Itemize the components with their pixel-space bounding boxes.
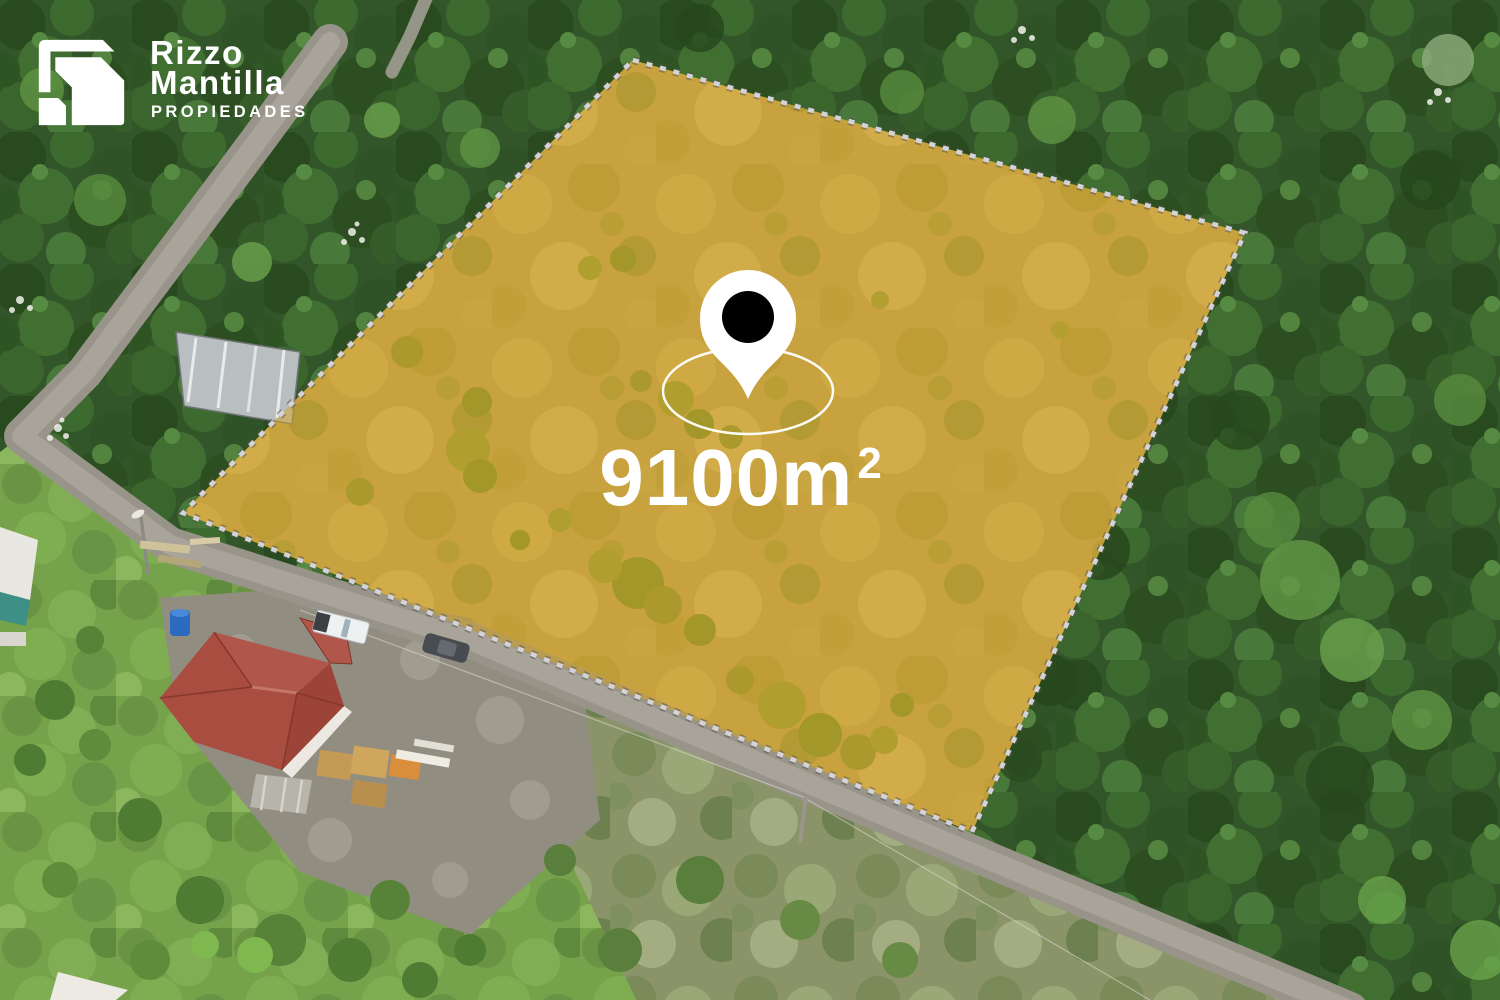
area-exponent: 2: [857, 442, 882, 486]
area-value: 9100m: [599, 433, 853, 522]
listing-image: 9100m2 Rizzo Mantilla PROPIEDADES: [0, 0, 1500, 1000]
brand-tagline: PROPIEDADES: [151, 104, 309, 121]
map-pin-dot: [722, 291, 774, 343]
brand-logo-text: Rizzo Mantilla PROPIEDADES: [150, 32, 350, 132]
blue-barrel: [170, 609, 190, 636]
brand-logo-icon: [33, 34, 130, 131]
brand-name-line2: Mantilla: [150, 66, 285, 99]
area-label: 9100m2: [599, 438, 883, 518]
brand-logo: Rizzo Mantilla PROPIEDADES: [33, 32, 333, 142]
